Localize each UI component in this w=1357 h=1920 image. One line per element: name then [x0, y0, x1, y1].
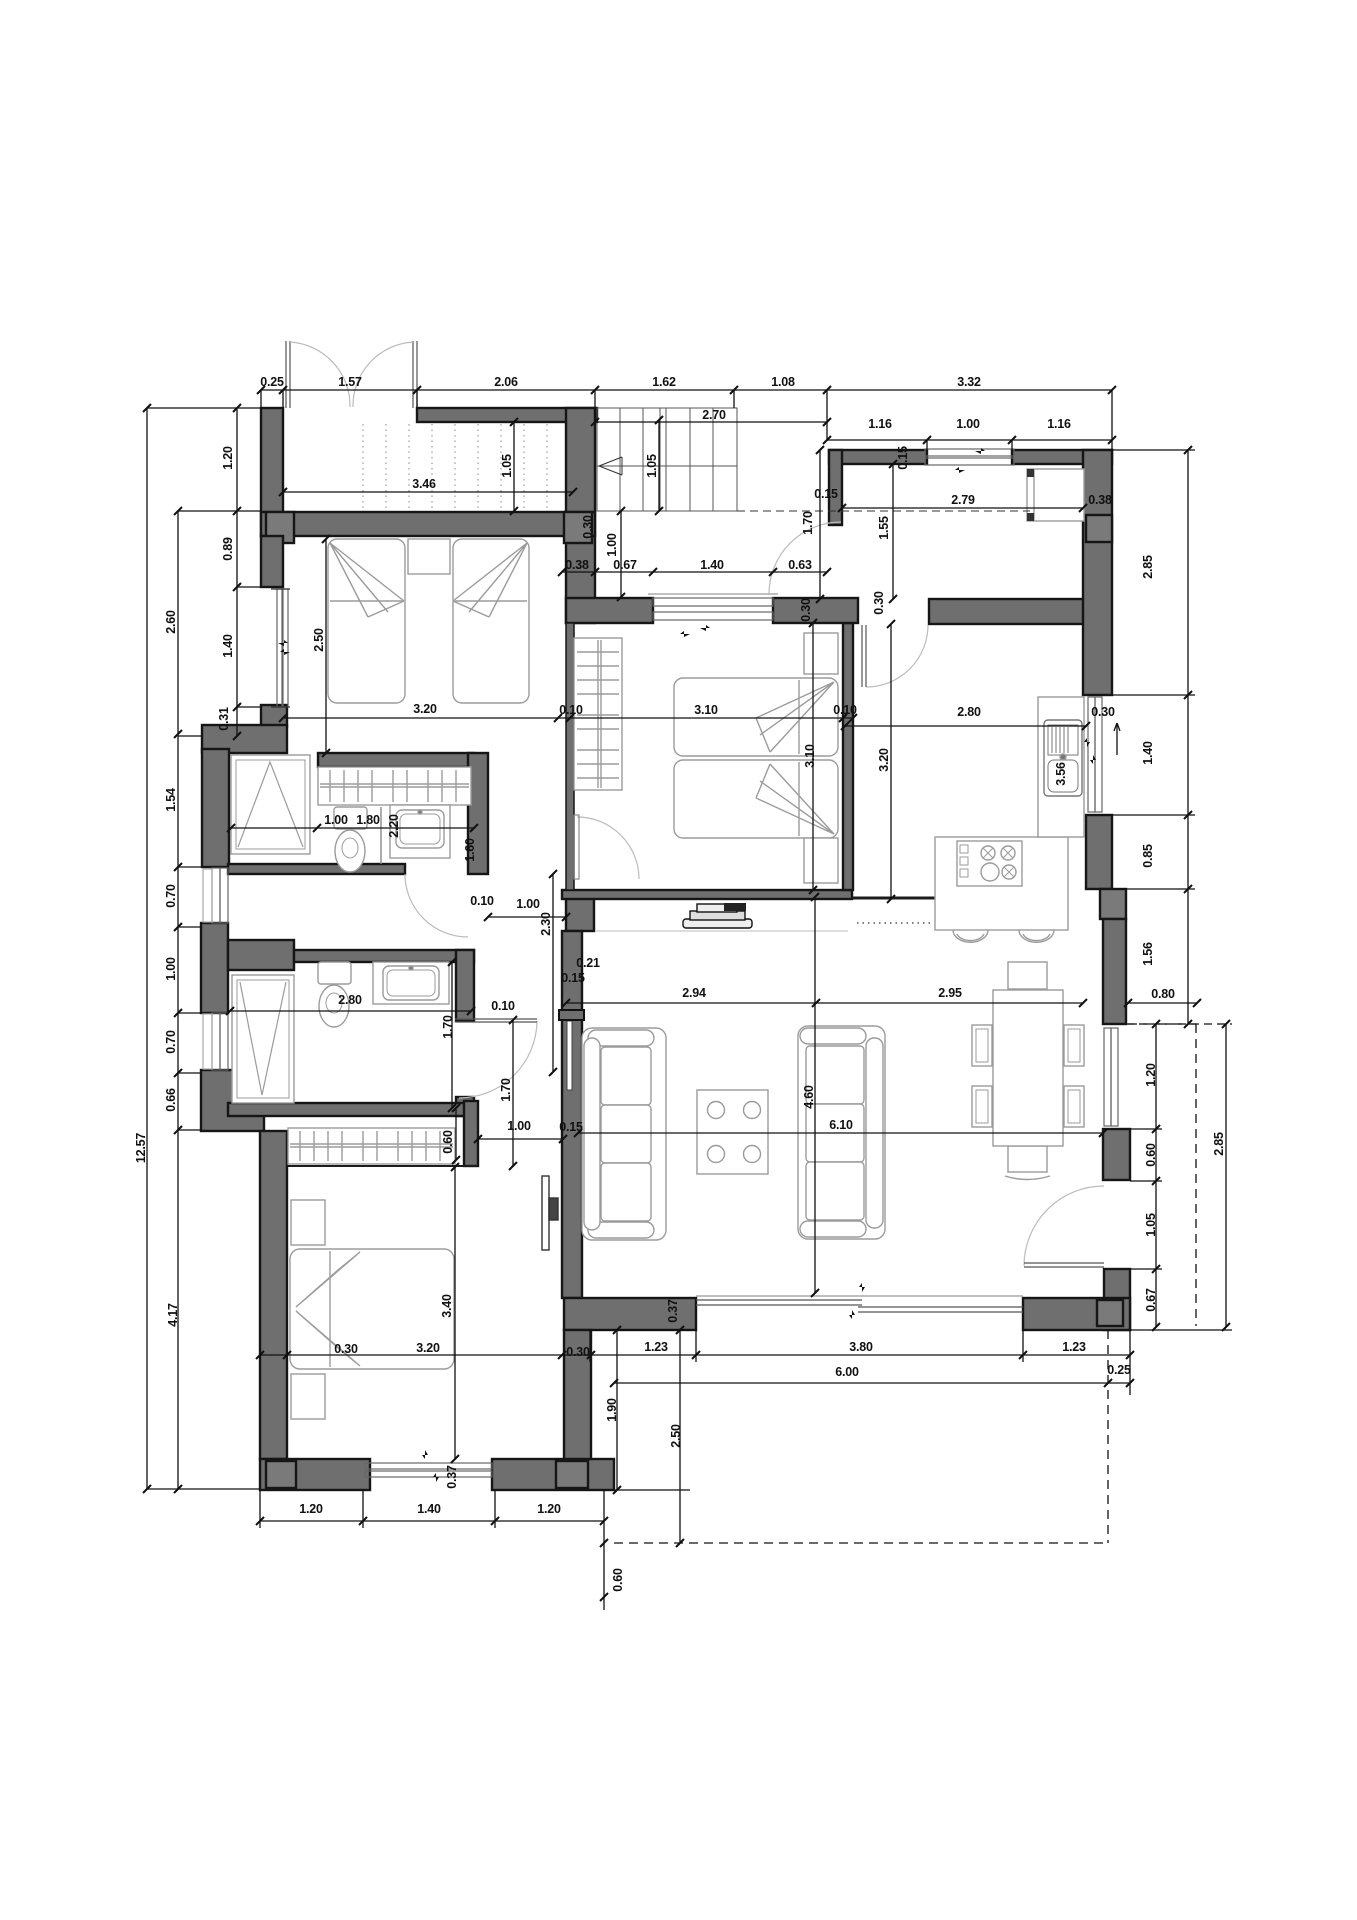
svg-text:4.60: 4.60 — [802, 1085, 816, 1109]
svg-text:1.62: 1.62 — [652, 375, 676, 389]
svg-text:3.56: 3.56 — [1054, 762, 1068, 786]
svg-text:2.20: 2.20 — [387, 814, 401, 838]
svg-text:1.16: 1.16 — [868, 417, 892, 431]
svg-text:3.40: 3.40 — [440, 1294, 454, 1318]
svg-text:1.90: 1.90 — [605, 1398, 619, 1422]
svg-text:4.17: 4.17 — [166, 1303, 180, 1327]
svg-text:0.15: 0.15 — [561, 971, 585, 985]
svg-text:3.20: 3.20 — [416, 1341, 440, 1355]
svg-text:0.67: 0.67 — [1144, 1288, 1158, 1312]
svg-text:2.79: 2.79 — [951, 493, 975, 507]
svg-text:1.40: 1.40 — [1141, 741, 1155, 765]
svg-text:0.38: 0.38 — [565, 558, 589, 572]
svg-text:1.54: 1.54 — [164, 788, 178, 812]
svg-text:1.40: 1.40 — [700, 558, 724, 572]
svg-text:0.30: 0.30 — [799, 598, 813, 622]
svg-text:3.10: 3.10 — [803, 744, 817, 768]
svg-text:1.00: 1.00 — [164, 957, 178, 981]
svg-text:1.23: 1.23 — [644, 1340, 668, 1354]
svg-text:0.60: 0.60 — [441, 1130, 455, 1154]
svg-text:1.05: 1.05 — [1144, 1213, 1158, 1237]
svg-text:0.89: 0.89 — [221, 537, 235, 561]
svg-text:0.30: 0.30 — [1091, 705, 1115, 719]
svg-text:1.00: 1.00 — [605, 533, 619, 557]
svg-text:0.80: 0.80 — [1151, 987, 1175, 1001]
svg-text:1.23: 1.23 — [1062, 1340, 1086, 1354]
svg-text:3.20: 3.20 — [413, 702, 437, 716]
svg-text:2.70: 2.70 — [702, 408, 726, 422]
svg-text:0.60: 0.60 — [1144, 1143, 1158, 1167]
svg-text:0.37: 0.37 — [666, 1299, 680, 1323]
svg-text:0.15: 0.15 — [559, 1120, 583, 1134]
svg-text:6.10: 6.10 — [829, 1118, 853, 1132]
svg-text:0.85: 0.85 — [1141, 844, 1155, 868]
svg-text:0.21: 0.21 — [576, 956, 600, 970]
svg-text:2.94: 2.94 — [682, 986, 706, 1000]
svg-text:1.55: 1.55 — [877, 516, 891, 540]
svg-text:0.25: 0.25 — [260, 375, 284, 389]
svg-text:0.10: 0.10 — [470, 894, 494, 908]
svg-text:1.08: 1.08 — [771, 375, 795, 389]
svg-text:2.50: 2.50 — [669, 1424, 683, 1448]
svg-text:3.46: 3.46 — [412, 477, 436, 491]
svg-text:1.00: 1.00 — [507, 1119, 531, 1133]
svg-text:0.66: 0.66 — [164, 1088, 178, 1112]
svg-text:1.20: 1.20 — [299, 1502, 323, 1516]
svg-text:0.30: 0.30 — [872, 591, 886, 615]
svg-text:1.57: 1.57 — [338, 375, 362, 389]
svg-text:0.15: 0.15 — [814, 487, 838, 501]
svg-text:0.30: 0.30 — [581, 515, 595, 539]
svg-text:1.70: 1.70 — [441, 1015, 455, 1039]
svg-text:0.63: 0.63 — [788, 558, 812, 572]
svg-text:1.00: 1.00 — [324, 813, 348, 827]
svg-text:2.85: 2.85 — [1141, 555, 1155, 579]
svg-text:1.05: 1.05 — [500, 454, 514, 478]
svg-text:2.06: 2.06 — [494, 375, 518, 389]
svg-text:2.80: 2.80 — [957, 705, 981, 719]
svg-text:12.57: 12.57 — [134, 1133, 148, 1164]
svg-text:1.00: 1.00 — [956, 417, 980, 431]
svg-text:3.80: 3.80 — [849, 1340, 873, 1354]
svg-text:0.10: 0.10 — [491, 999, 515, 1013]
svg-text:1.70: 1.70 — [801, 511, 815, 535]
svg-text:1.20: 1.20 — [1144, 1063, 1158, 1087]
svg-text:0.30: 0.30 — [334, 1342, 358, 1356]
svg-text:1.20: 1.20 — [221, 446, 235, 470]
svg-text:1.80: 1.80 — [356, 813, 380, 827]
svg-text:0.67: 0.67 — [613, 558, 637, 572]
svg-text:0.30: 0.30 — [566, 1345, 590, 1359]
svg-text:0.70: 0.70 — [164, 884, 178, 908]
svg-text:1.40: 1.40 — [221, 634, 235, 658]
svg-text:1.20: 1.20 — [537, 1502, 561, 1516]
svg-text:1.56: 1.56 — [1141, 942, 1155, 966]
svg-text:2.85: 2.85 — [1212, 1132, 1226, 1156]
svg-text:1.40: 1.40 — [417, 1502, 441, 1516]
svg-text:0.15: 0.15 — [896, 446, 910, 470]
svg-text:0.10: 0.10 — [559, 703, 583, 717]
svg-text:3.32: 3.32 — [957, 375, 981, 389]
svg-text:0.38: 0.38 — [1088, 493, 1112, 507]
svg-text:6.00: 6.00 — [835, 1365, 859, 1379]
svg-text:0.37: 0.37 — [445, 1465, 459, 1489]
svg-text:2.80: 2.80 — [338, 993, 362, 1007]
svg-text:2.95: 2.95 — [938, 986, 962, 1000]
svg-text:0.25: 0.25 — [1107, 1363, 1131, 1377]
svg-text:3.10: 3.10 — [694, 703, 718, 717]
svg-text:2.50: 2.50 — [312, 628, 326, 652]
svg-text:2.60: 2.60 — [164, 610, 178, 634]
svg-text:1.70: 1.70 — [499, 1078, 513, 1102]
svg-text:0.10: 0.10 — [833, 703, 857, 717]
svg-text:1.16: 1.16 — [1047, 417, 1071, 431]
svg-text:0.31: 0.31 — [217, 707, 231, 731]
svg-text:1.05: 1.05 — [645, 454, 659, 478]
svg-text:1.60: 1.60 — [463, 838, 477, 862]
svg-text:2.30: 2.30 — [539, 912, 553, 936]
svg-text:3.20: 3.20 — [877, 748, 891, 772]
svg-text:0.70: 0.70 — [164, 1030, 178, 1054]
svg-text:0.60: 0.60 — [611, 1568, 625, 1592]
svg-text:1.00: 1.00 — [516, 897, 540, 911]
